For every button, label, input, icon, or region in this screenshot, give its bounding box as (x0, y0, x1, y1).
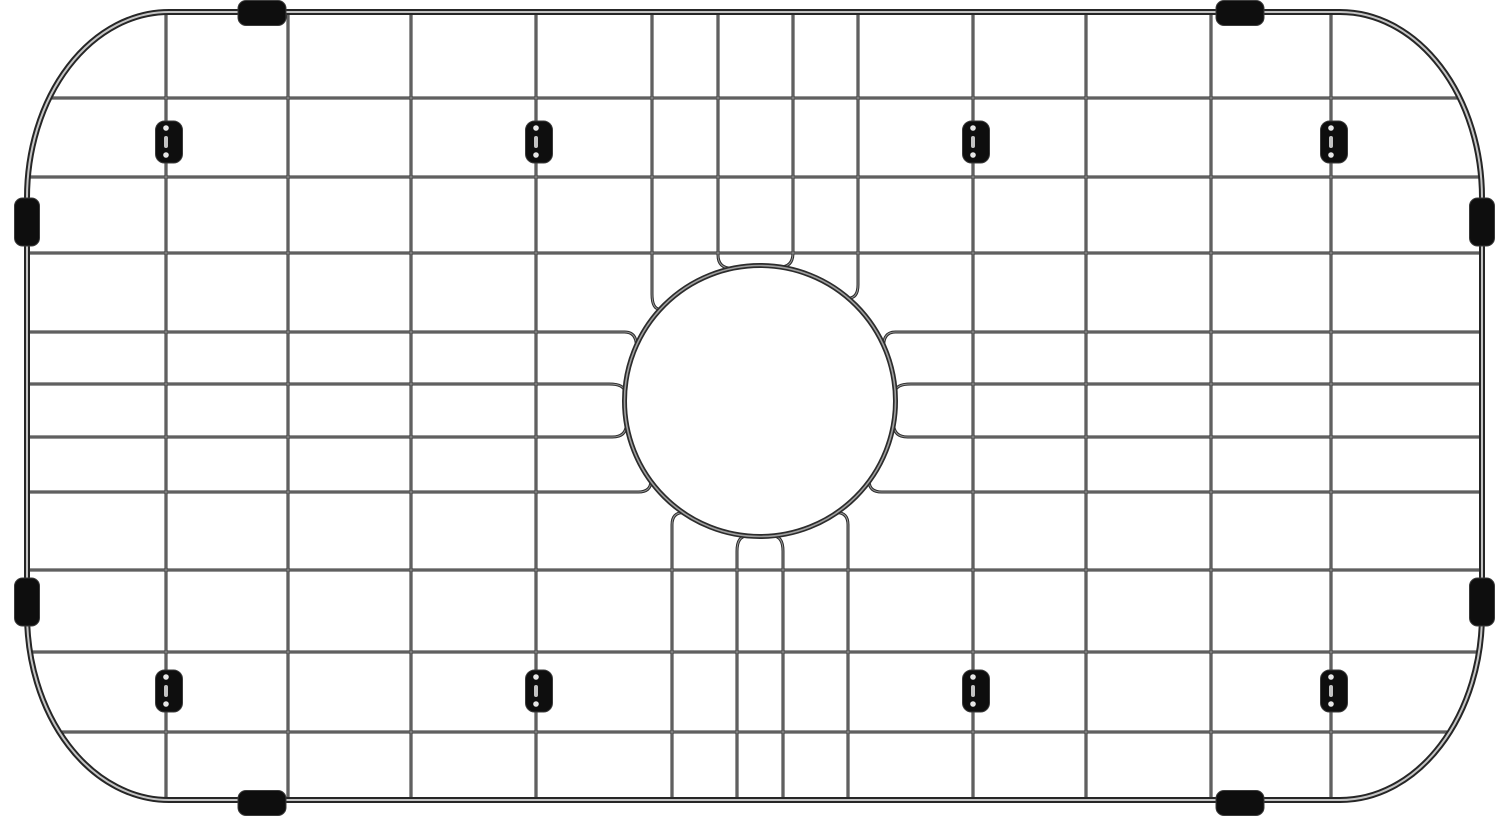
foot-wire-glint (1328, 152, 1334, 158)
foot-slot-highlight (971, 685, 975, 697)
bumper-top (1216, 1, 1264, 26)
bumper-right (1470, 578, 1495, 626)
bumper-bottom (238, 791, 286, 816)
bumper-top (238, 1, 286, 26)
foot-body (1321, 121, 1348, 163)
foot-body (156, 121, 183, 163)
foot-body (963, 121, 990, 163)
grid-wire-strokes (27, 12, 1482, 800)
outer-frame-sheen (27, 12, 1482, 800)
rubber-foot (156, 670, 183, 712)
foot-wire-glint (970, 152, 976, 158)
foot-wire-glint (163, 674, 169, 680)
foot-wire-glint (533, 674, 539, 680)
foot-wire-glint (1328, 125, 1334, 131)
foot-slot-highlight (1329, 136, 1333, 148)
foot-slot-highlight (534, 685, 538, 697)
outer-frame-wire (27, 12, 1482, 800)
foot-wire-glint (163, 152, 169, 158)
foot-wire-glint (163, 701, 169, 707)
foot-slot-highlight (534, 136, 538, 148)
edge-bumpers (15, 1, 1495, 816)
bumper-bottom (1216, 791, 1264, 816)
product-image-canvas (0, 0, 1499, 817)
foot-wire-glint (163, 125, 169, 131)
rubber-foot (963, 121, 990, 163)
foot-body (963, 670, 990, 712)
foot-body (526, 121, 553, 163)
foot-wire-glint (970, 701, 976, 707)
rubber-foot (156, 121, 183, 163)
foot-wire-glint (533, 125, 539, 131)
rubber-foot (526, 670, 553, 712)
rubber-feet (156, 121, 1348, 712)
rubber-foot (526, 121, 553, 163)
foot-body (1321, 670, 1348, 712)
foot-slot-highlight (1329, 685, 1333, 697)
foot-body (526, 670, 553, 712)
grid-wires (27, 12, 1482, 800)
rubber-foot (1321, 670, 1348, 712)
sink-grid-image (0, 0, 1499, 817)
bumper-left (15, 198, 40, 246)
rubber-foot (1321, 121, 1348, 163)
bumper-right (1470, 198, 1495, 246)
foot-slot-highlight (164, 136, 168, 148)
rubber-foot (963, 670, 990, 712)
bumper-left (15, 578, 40, 626)
foot-slot-highlight (971, 136, 975, 148)
grid-wire-sheen (27, 12, 1482, 800)
foot-wire-glint (533, 701, 539, 707)
foot-wire-glint (533, 152, 539, 158)
foot-slot-highlight (164, 685, 168, 697)
outer-frame (27, 12, 1482, 800)
drain-ring (625, 266, 896, 537)
foot-wire-glint (970, 674, 976, 680)
foot-body (156, 670, 183, 712)
drain-ring-wire (625, 266, 896, 537)
foot-wire-glint (970, 125, 976, 131)
foot-wire-glint (1328, 701, 1334, 707)
foot-wire-glint (1328, 674, 1334, 680)
